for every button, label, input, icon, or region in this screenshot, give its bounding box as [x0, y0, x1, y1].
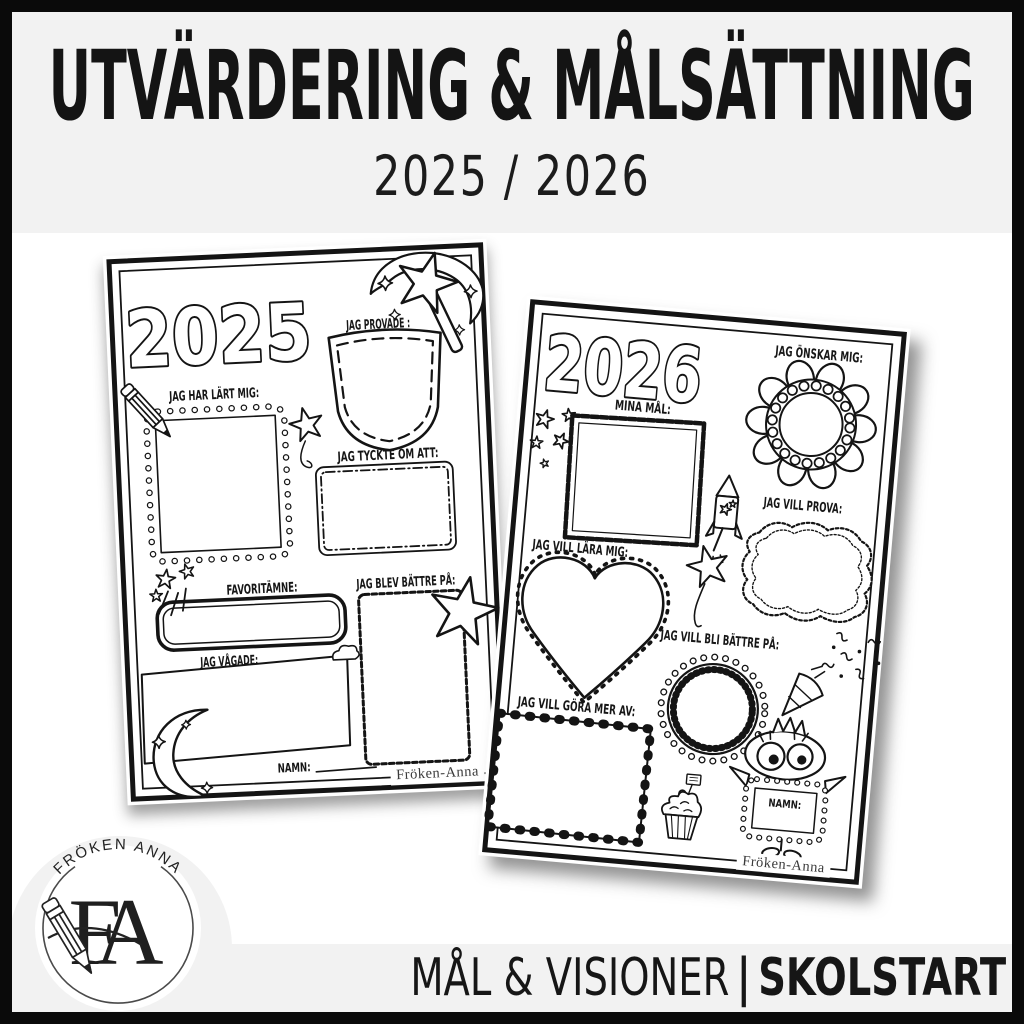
title-band: UTVÄRDERING & MÅLSÄTTNING 2025 / 2026 — [12, 12, 1012, 233]
name-frame: NAMN: — [742, 778, 827, 843]
footer-separator: | — [729, 944, 758, 1012]
liked-frame — [316, 461, 457, 555]
ornate-plaque-frame — [738, 517, 876, 626]
worksheet-2026: 2026 JAG ÖNSKAR MIG: — [478, 295, 911, 888]
worksheet-2025: 2025 JAG PROVADE : JAG HAR LÄRT MIG: — [103, 239, 512, 806]
ticked-square-frame — [488, 713, 651, 842]
year-2025: 2025 — [124, 288, 314, 386]
footer-series: MÅL & VISIONER — [410, 944, 729, 1012]
footer-category: SKOLSTART — [758, 944, 1006, 1012]
footer-text: MÅL & VISIONER | SKOLSTART — [410, 944, 1006, 1012]
label-namn-2026: NAMN: — [768, 796, 802, 812]
page-subtitle-years: 2025 / 2026 — [373, 146, 650, 207]
goals-frame — [565, 415, 704, 545]
froken-anna-logo: FRÖKEN ANNA FA — [10, 832, 232, 1012]
label-namn-2025: NAMN: — [277, 759, 311, 775]
favorite-subject-frame — [157, 594, 347, 650]
page-title: UTVÄRDERING & MÅLSÄTTNING — [49, 34, 975, 140]
product-cover: UTVÄRDERING & MÅLSÄTTNING 2025 / 2026 — [0, 0, 1024, 1024]
